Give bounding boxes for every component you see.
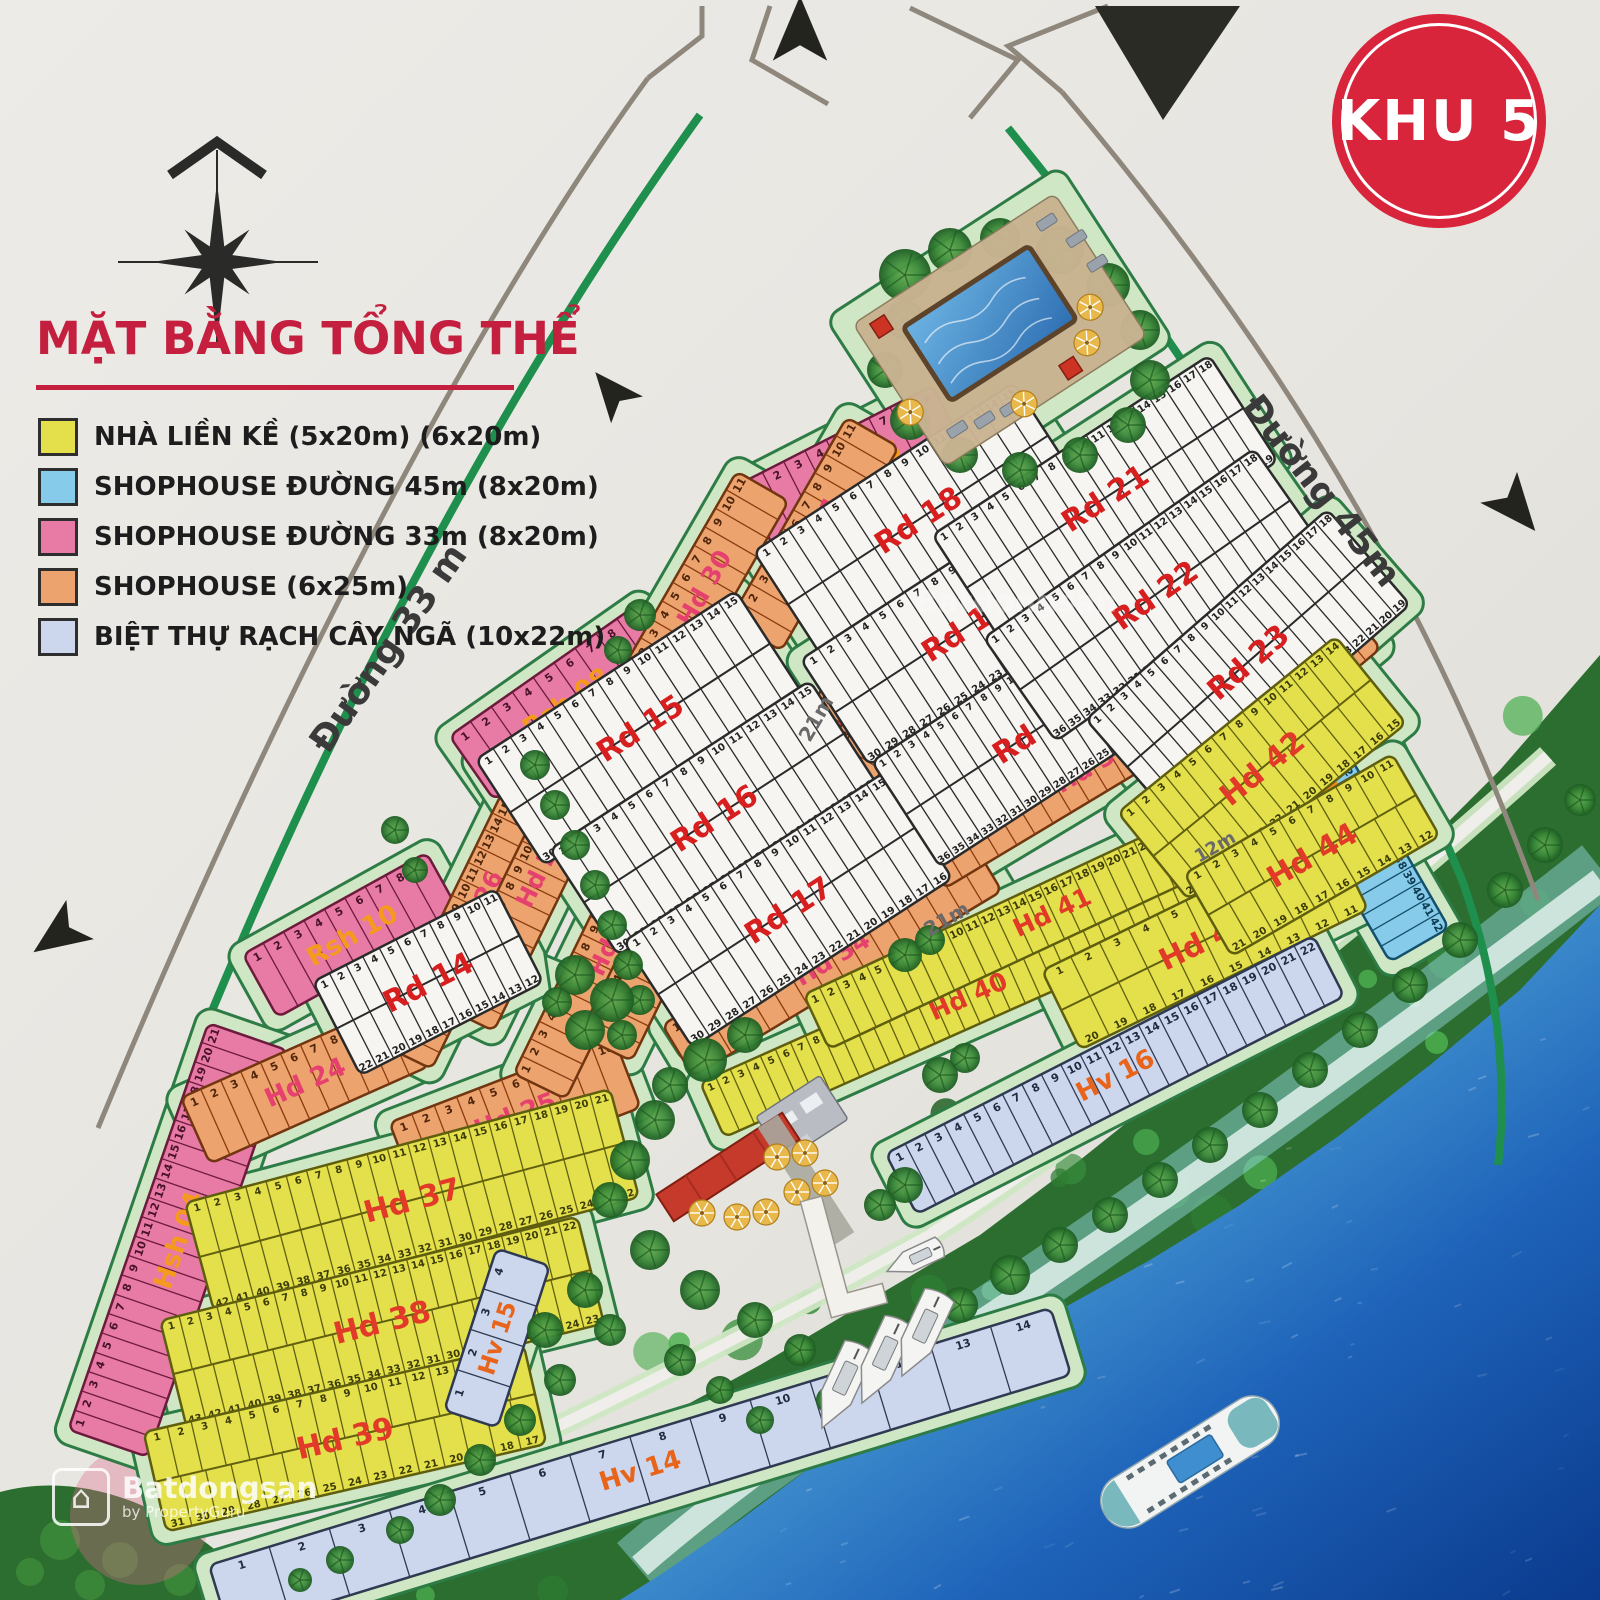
- tree-icon: [950, 1043, 980, 1073]
- tree-icon: [1242, 1092, 1278, 1128]
- title-underline: [36, 385, 514, 390]
- tree-icon: [1392, 967, 1428, 1003]
- umbrella-icon: [724, 1204, 750, 1230]
- road-arrow-icon: [773, 0, 827, 61]
- tree-icon: [594, 1314, 626, 1346]
- tree-icon: [990, 1255, 1030, 1295]
- tree-icon: [542, 987, 572, 1017]
- tree-icon: [613, 950, 643, 980]
- umbrella-icon: [764, 1144, 790, 1170]
- tree-icon: [567, 1272, 603, 1308]
- tree-icon: [326, 1546, 354, 1574]
- tree-icon: [1110, 407, 1146, 443]
- road-arrow-icon: [20, 900, 94, 972]
- tree-icon: [864, 1189, 896, 1221]
- tree-icon: [527, 1312, 563, 1348]
- watermark-sub: by PropertyGuru: [122, 1503, 317, 1521]
- tree-icon: [1342, 1012, 1378, 1048]
- watermark-brand: Batdongsan: [122, 1474, 317, 1503]
- legend-label: BIỆT THỰ RẠCH CÂY NGÃ (10x22m): [94, 622, 605, 652]
- tree-icon: [1527, 827, 1563, 863]
- road-arrow-icon: [579, 359, 643, 424]
- legend-swatch: [38, 518, 78, 556]
- watermark: ⌂ Batdongsan by PropertyGuru: [52, 1468, 317, 1526]
- tree-icon: [1192, 1127, 1228, 1163]
- legend-item-4: BIỆT THỰ RẠCH CÂY NGÃ (10x22m): [38, 618, 605, 656]
- legend-swatch: [38, 468, 78, 506]
- tree-icon: [402, 857, 428, 883]
- tree-icon: [504, 1404, 536, 1436]
- road-arrow-icon: [1480, 472, 1553, 547]
- legend-label: SHOPHOUSE ĐƯỜNG 33m (8x20m): [94, 522, 599, 552]
- tree-icon: [635, 1100, 675, 1140]
- legend: NHÀ LIỀN KỀ (5x20m) (6x20m)SHOPHOUSE ĐƯỜ…: [38, 418, 605, 668]
- tree-icon: [288, 1568, 312, 1592]
- tree-icon: [544, 1364, 576, 1396]
- tree-icon: [607, 1020, 637, 1050]
- tree-icon: [664, 1344, 696, 1376]
- tree-icon: [746, 1406, 774, 1434]
- page-title: MẶT BẰNG TỔNG THỂ: [36, 312, 580, 365]
- tree-icon: [630, 1230, 670, 1270]
- tree-icon: [624, 599, 656, 631]
- watermark-center: Batdongsan: [915, 585, 1117, 620]
- legend-label: SHOPHOUSE ĐƯỜNG 45m (8x20m): [94, 472, 599, 502]
- tree-icon: [610, 1140, 650, 1180]
- road-arrow-icon: [1095, 6, 1240, 120]
- site-plan-board: 123456789Rsh 06123456789Rsh 08123456789R…: [0, 0, 1600, 1600]
- tree-icon: [683, 1038, 727, 1082]
- tree-icon: [381, 816, 409, 844]
- master-plan-map: 123456789Rsh 06123456789Rsh 08123456789R…: [0, 0, 1600, 1600]
- tree-icon: [1564, 784, 1596, 816]
- tree-icon: [652, 1067, 688, 1103]
- legend-swatch: [38, 568, 78, 606]
- tree-icon: [386, 1516, 414, 1544]
- legend-swatch: [38, 418, 78, 456]
- tree-icon: [604, 636, 632, 664]
- tree-icon: [424, 1484, 456, 1516]
- legend-label: SHOPHOUSE (6x25m): [94, 572, 408, 602]
- tree-icon: [1042, 1227, 1078, 1263]
- zone-badge: KHU 5: [1332, 14, 1546, 228]
- tree-icon: [1002, 452, 1038, 488]
- tree-icon: [520, 750, 550, 780]
- tree-icon: [560, 830, 590, 860]
- tree-icon: [680, 1270, 720, 1310]
- legend-swatch: [38, 618, 78, 656]
- tree-icon: [706, 1376, 734, 1404]
- legend-item-0: NHÀ LIỀN KỀ (5x20m) (6x20m): [38, 418, 605, 456]
- legend-label: NHÀ LIỀN KỀ (5x20m) (6x20m): [94, 422, 541, 452]
- tree-icon: [1130, 360, 1170, 400]
- legend-item-3: SHOPHOUSE (6x25m): [38, 568, 605, 606]
- tree-icon: [580, 870, 610, 900]
- umbrella-icon: [689, 1200, 715, 1226]
- tree-icon: [737, 1302, 773, 1338]
- tree-icon: [1442, 922, 1478, 958]
- tree-icon: [540, 790, 570, 820]
- tree-icon: [1292, 1052, 1328, 1088]
- legend-item-1: SHOPHOUSE ĐƯỜNG 45m (8x20m): [38, 468, 605, 506]
- tree-icon: [565, 1010, 605, 1050]
- tree-icon: [727, 1017, 763, 1053]
- tree-icon: [1142, 1162, 1178, 1198]
- tree-icon: [1487, 872, 1523, 908]
- umbrella-icon: [812, 1170, 838, 1196]
- tree-icon: [784, 1334, 816, 1366]
- tree-icon: [1092, 1197, 1128, 1233]
- umbrella-icon: [753, 1199, 779, 1225]
- tree-icon: [464, 1444, 496, 1476]
- watermark-logo-icon: ⌂: [52, 1468, 110, 1526]
- umbrella-icon: [792, 1140, 818, 1166]
- tree-icon: [597, 910, 627, 940]
- tree-icon: [1062, 437, 1098, 473]
- legend-item-2: SHOPHOUSE ĐƯỜNG 33m (8x20m): [38, 518, 605, 556]
- tree-icon: [592, 1182, 628, 1218]
